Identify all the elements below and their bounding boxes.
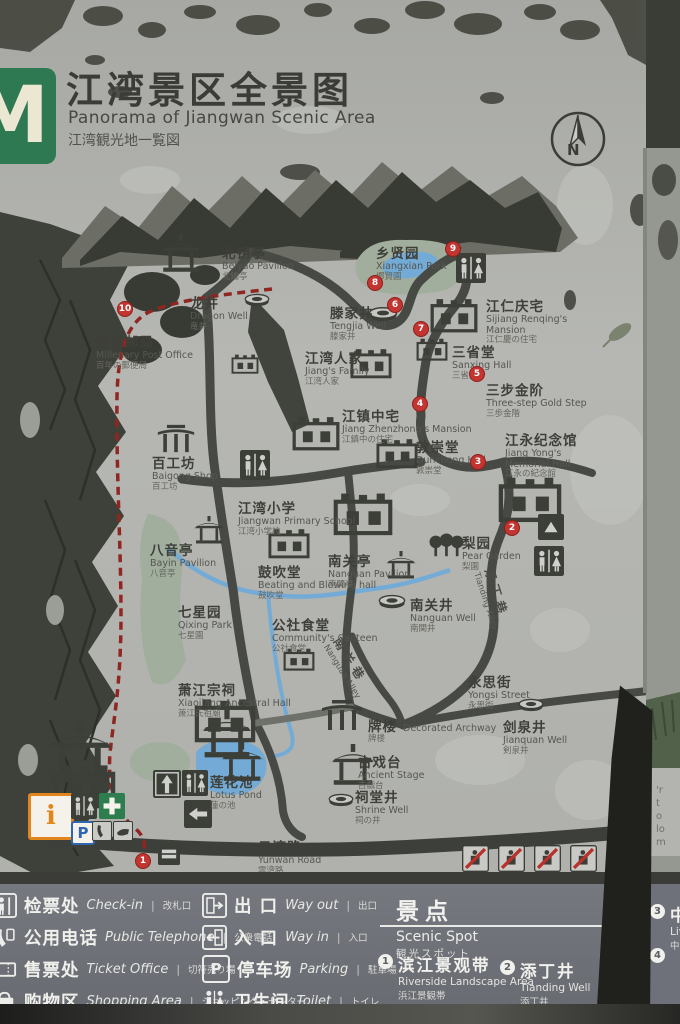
legend-separator: | [356,963,360,976]
legend-label-en: Way out [285,898,338,913]
label-zh: 江湾小学 [238,502,355,517]
legend-label-ja: 改札口 [163,898,192,912]
spot-number: 2 [500,960,515,975]
label-ja: 江湾小学校 [238,528,355,538]
map-label-decorated-archway: 牌楼Decorated Archway牌楼 [368,717,496,745]
label-ja: 三歩金階 [486,410,587,420]
marker-number: 4 [417,400,423,409]
text-fragment: t [656,797,666,810]
label-zh: 百年邮局 [96,336,193,351]
marker-number: 1 [140,857,146,866]
label-ja: 剣泉井 [503,747,567,757]
logo-letter: M [0,77,49,155]
spot-number: 3 [650,904,665,919]
spot-en: Tianding Well [520,982,590,994]
scenic-spot-marker-7: 7 [413,321,429,337]
label-ja: 滕家井 [330,333,386,343]
marker-number: 5 [474,370,480,379]
map-label-xiangxian-park: 乡贤园Xiangxian Park郷賢園 [376,247,447,282]
map-sign-photo: M 江湾景区全景图 Panorama of Jiangwan Scenic Ar… [0,0,680,1024]
legend-separator: | [151,899,155,912]
legend-label-en: Public Telephone [105,930,214,945]
trees-icon [428,533,464,558]
label-zh: 江镇中宅 [342,410,472,425]
label-ja: 八音亭 [150,570,216,580]
label-ja: 江永の紀念館 [505,470,597,480]
legend-label-zh: 入 口 [234,925,278,950]
cross-box-icon [99,793,125,819]
map-label-yunwan-road: 云湾路Yunwan Road雲湾路 [258,841,321,876]
well-icon [244,291,270,307]
label-ja: 百年の郵便局 [96,362,193,372]
label-zh: 滕家井 [330,307,386,322]
legend-item-ticket: 售票处Ticket Office|切符売り場 [0,955,236,983]
label-zh: 莲花池 [210,776,262,791]
map-label-beiyao-pavilion: 北钥亭Beiyao Pavilion北鑰亭 [222,247,294,282]
label-zh: 梨园 [462,537,521,552]
label-ja: 江仁慶の住宅 [486,336,586,346]
label-zh: 祠堂井 [355,791,408,806]
spot-number: 4 [650,948,665,963]
prohibit-icon [534,845,561,872]
legend-separator: | [337,931,341,944]
legend-label-ja: 出口 [358,898,377,912]
toilet-icon [240,450,270,480]
label-ja: 百工坊 [152,483,218,493]
label-zh: 古戏台 [358,756,424,771]
house-icon [430,298,478,333]
map-label-shrine-well: 祠堂井Shrine Well祠の井 [355,791,408,826]
map-label-qixing-park: 七星园Qixing Park七星園 [178,606,232,641]
map-label-jiangwan-primary-school: 江湾小学Jiangwan Primary School江湾小学校 [238,502,355,537]
scenic-spot-title-en: Scenic Spot [396,929,478,945]
prohibit-icon [570,845,597,872]
label-zh: 三省堂 [452,346,511,361]
map-label-jiang-yong-memorial-hall: 江永纪念馆Jiang Yong's Memorial Hall江永の紀念館 [505,434,597,480]
spot-zh: 添丁井 [520,958,590,982]
legend-label-en: Parking [300,962,349,977]
scenic-spot-2: 2添丁井Tianding Well添丁井 [500,958,590,1008]
information-icon: i [28,793,74,840]
toilet-icon [534,546,564,576]
map-label-jianquan-well: 剑泉井Jianquan Well剣泉井 [503,721,567,756]
label-ja: 蓮の池 [210,802,262,812]
label-zh: 云湾路 [258,841,321,856]
marker-number: 8 [372,279,378,288]
way-in-icon [153,770,181,798]
legend-label-en: Ticket Office [87,962,169,977]
label-zh: 江湾人家 [305,352,369,367]
scenic-spot-marker-10: 10 [117,301,133,317]
label-ja: 永思街 [468,702,530,712]
label-zh: 南关井 [410,599,476,614]
marker-number: 3 [475,458,481,467]
label-ja: 祠の井 [355,817,408,827]
archway-icon [320,698,364,732]
label-zh: 乡贤园 [376,247,447,262]
scenic-area-logo: M [0,68,56,164]
legend-label-ja: 入口 [349,930,368,944]
label-zh: 永思街 [468,676,530,691]
label-ja: 竜井 [190,323,248,333]
map-label-yongsi-street: 永思街Yongsi Street永思街 [468,676,530,711]
map-label-bayin-pavilion: 八音亭Bayin Pavilion八音亭 [150,544,216,579]
scenic-spot-marker-2: 2 [504,520,520,536]
parking-icon: P [202,955,230,983]
map-label-three-step-gold-step: 三步金阶Three-step Gold Step三歩金階 [486,384,587,419]
spot-en: Liv [670,926,680,938]
scenic-title-underline [380,925,608,927]
label-ja: 萧江氏祖廟 [178,710,291,720]
label-ja: 南関亭 [328,581,410,591]
scenic-spot-marker-8: 8 [367,275,383,291]
label-ja: 江湾人家 [305,378,369,388]
label-zh: 七星园 [178,606,232,621]
text-fragment: 'r [656,784,666,797]
map-label-xiaojiang-ancestral-hall: 萧江宗祠Xiaojiang Ancestral Hall萧江氏祖廟 [178,684,291,719]
legend-label-en: Check-in [87,898,144,913]
text-fragment: lo [656,823,666,836]
map-label-jiangs-family: 江湾人家Jiang's Family江湾人家 [305,352,369,387]
legend-separator: | [176,963,180,976]
way-out-icon [202,893,227,918]
sign-title-en: Panorama of Jiangwan Scenic Area [68,108,376,128]
label-zh: 南关亭 [328,555,410,570]
legend-label-en: Way in [285,930,329,945]
phone-box-icon [92,821,112,841]
spot-number: 1 [378,954,393,969]
spot-zh: 中 [670,902,680,926]
phone-icon [0,925,17,950]
pavilion-icon [192,516,226,545]
sign-dark-icon [538,514,564,540]
legend-item-way-in: 入 口Way in|入口 [202,923,368,951]
adjacent-panel-text-fragments: 'rtolom [656,784,666,849]
compass-n-label: N [567,141,580,159]
legend-separator: | [346,899,350,912]
legend-label-zh: 公用电话 [24,925,98,950]
adjacent-panel-legend: 3中Liv中4 [648,884,680,1024]
label-ja: 牌楼 [368,735,496,745]
map-label-baigong-shop: 百工坊Baigong Shop百工坊 [152,457,218,492]
marker-number: 10 [119,305,132,314]
map-label-lotus-pond: 莲花池Lotus Pond蓮の池 [210,776,262,811]
scenic-spot-title-zh: 景点 [396,892,454,926]
legend-item-way-out: 出 口Way out|出口 [202,891,377,919]
map-label-nanguan-well: 南关井Nanguan Well南関井 [410,599,476,634]
text-fragment: m [656,836,666,849]
house-icon [416,338,448,361]
legend-item-parking: P停车场Parking|駐車場 [202,955,397,983]
spot-ja: 中 [670,938,680,952]
map-label-millenary-post-office: 百年邮局Millenary Post Office百年の郵便局 [96,336,193,371]
label-en: Jiang Yong's Memorial Hall [505,449,597,470]
sign-title-zh: 江湾景区全景图 [66,60,353,114]
scenic-spot-marker-9: 9 [445,241,461,257]
map-label-tengjia-well: 滕家井Tengjia Well滕家井 [330,307,386,342]
marker-number: 6 [392,301,398,310]
label-zh: 龙井 [190,297,248,312]
label-zh: 北钥亭 [222,247,294,262]
well-icon [328,791,354,807]
well-icon [378,592,406,609]
label-ja: 郷賢園 [376,273,447,283]
map-label-nanguan-pavilion: 南关亭Nanguan Pavilion南関亭 [328,555,410,590]
scenic-spot-marker-4: 4 [412,396,428,412]
sign-title-ja: 江湾観光地一覧図 [68,130,180,150]
ticket-dark-icon [158,843,180,865]
pavilion-icon [158,234,204,274]
map-label-ancient-stage: 古戏台Ancient Stage古戯台 [358,756,424,791]
label-en: Decorated Archway [403,723,496,734]
label-zh: 江仁庆宅 [486,300,586,315]
archway-icon [156,423,196,454]
label-zh: 八音亭 [150,544,216,559]
label-zh: 江永纪念馆 [505,434,597,449]
compass-north-icon: N [549,110,607,168]
toilet-icon [71,793,97,819]
legend-item-checkin: 检票处Check-in|改札口 [0,891,191,919]
label-zh: 三步金阶 [486,384,587,399]
prohibit-icon [462,845,489,872]
map-label-sijiang-renqing-mansion: 江仁庆宅Sijiang Renqing's Mansion江仁慶の住宅 [486,300,586,346]
ticket-icon [0,957,17,982]
checkin-icon [0,893,17,918]
marker-number: 9 [450,245,456,254]
scenic-spot-marker-6: 6 [387,297,403,313]
toilet-icon [456,253,486,283]
photo-bottom-shadow [0,1004,680,1024]
label-zh: 百工坊 [152,457,218,472]
label-ja: 南関井 [410,625,476,635]
legend-label-zh: 出 口 [234,893,278,918]
house-icon [292,416,340,451]
label-zh: 萧江宗祠 [178,684,291,699]
label-ja: 鼓吹堂 [258,592,376,602]
scenic-spot-marker-5: 5 [469,366,485,382]
label-zh: 剑泉井 [503,721,567,736]
hand-box-icon [113,821,133,841]
sign-edge-line [643,148,647,693]
text-fragment: o [656,810,666,823]
prohibit-icon [498,845,525,872]
way-in-icon [202,925,227,950]
label-zh: 公社食堂 [272,619,377,634]
label-ja: 七星園 [178,632,232,642]
map-label-dragon-well: 龙井Dragon Well竜井 [190,297,248,332]
scenic-spot-marker-1: 1 [135,853,151,869]
toilet-icon [182,770,208,796]
marker-number: 2 [509,524,515,533]
scenic-spot-marker-3: 3 [470,454,486,470]
legend-band: 检票处Check-in|改札口公用电话Public Telephone|公衆電話… [0,884,648,1012]
side-spot-3: 3中Liv中 [650,902,680,952]
legend-label-zh: 检票处 [24,893,80,918]
legend-label-zh: 售票处 [24,957,80,982]
label-en: Sijiang Renqing's Mansion [486,315,586,336]
label-ja: 北鑰亭 [222,273,294,283]
house-icon [231,354,259,374]
legend-label-zh: 停车场 [237,957,293,982]
way-out-icon [184,800,212,828]
marker-number: 7 [418,325,424,334]
label-zh: 牌楼 [368,719,397,735]
